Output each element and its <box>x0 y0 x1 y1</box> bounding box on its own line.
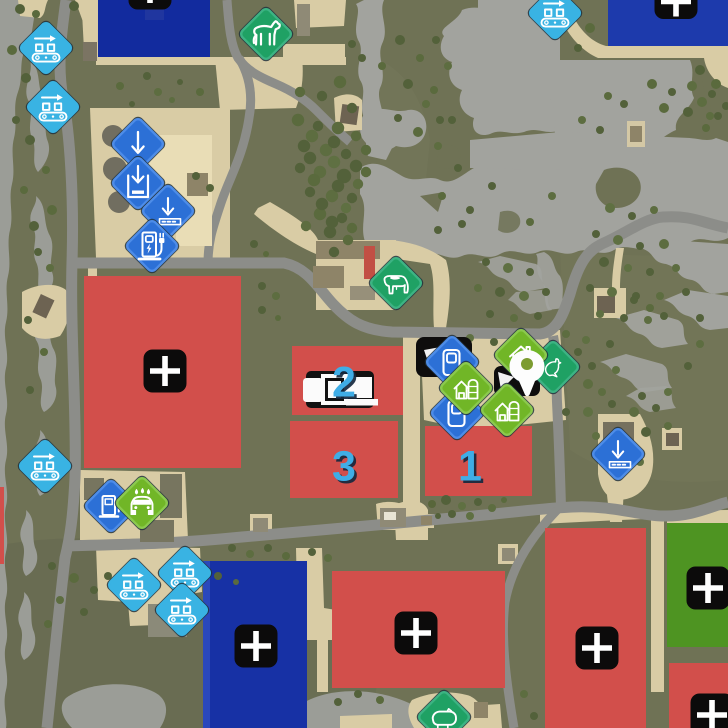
svg-text:3: 3 <box>332 443 356 491</box>
svg-text:1: 1 <box>458 443 482 491</box>
svg-text:2: 2 <box>332 359 356 407</box>
